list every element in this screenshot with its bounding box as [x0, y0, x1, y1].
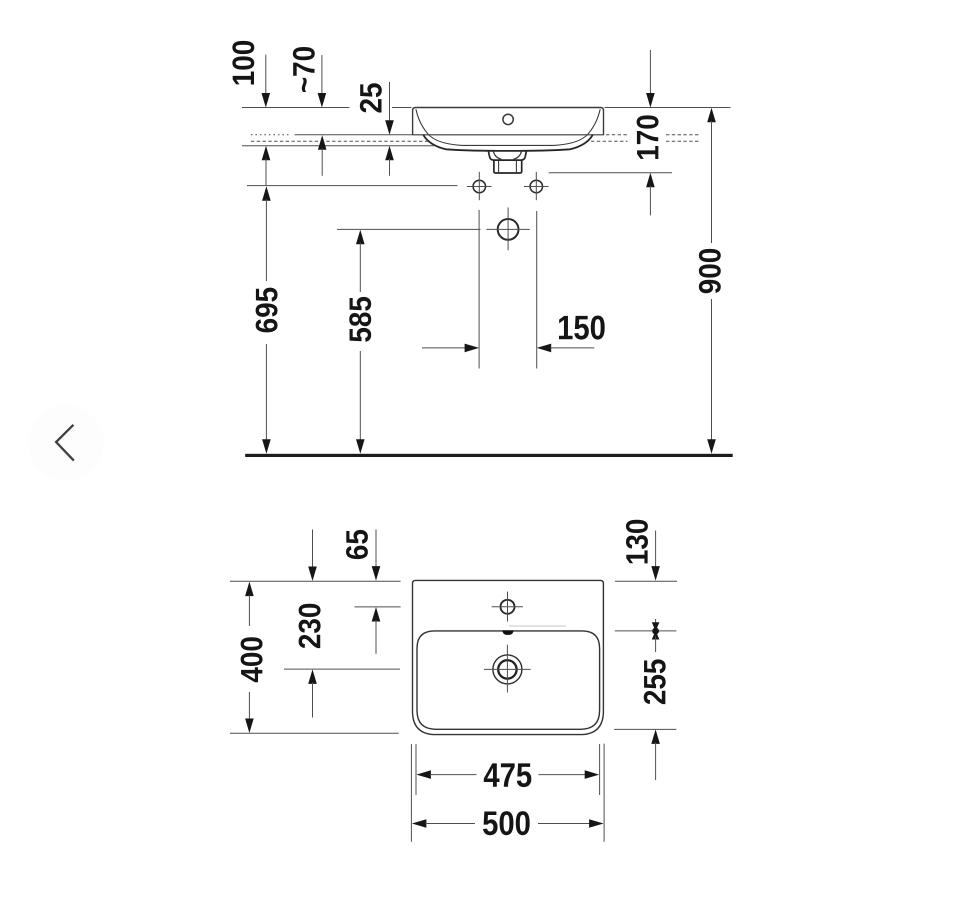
svg-text:500: 500 — [482, 804, 531, 843]
svg-text:475: 475 — [483, 756, 532, 795]
svg-text:~70: ~70 — [287, 46, 322, 93]
svg-text:900: 900 — [693, 248, 728, 295]
svg-text:230: 230 — [293, 603, 328, 650]
svg-text:130: 130 — [620, 519, 655, 566]
svg-text:585: 585 — [344, 296, 379, 343]
svg-text:255: 255 — [638, 659, 673, 706]
svg-text:400: 400 — [235, 636, 270, 683]
svg-text:170: 170 — [631, 114, 666, 161]
svg-text:65: 65 — [340, 529, 375, 560]
svg-text:150: 150 — [557, 308, 606, 347]
svg-text:695: 695 — [250, 287, 285, 334]
svg-text:25: 25 — [354, 82, 389, 113]
svg-text:100: 100 — [227, 40, 262, 87]
